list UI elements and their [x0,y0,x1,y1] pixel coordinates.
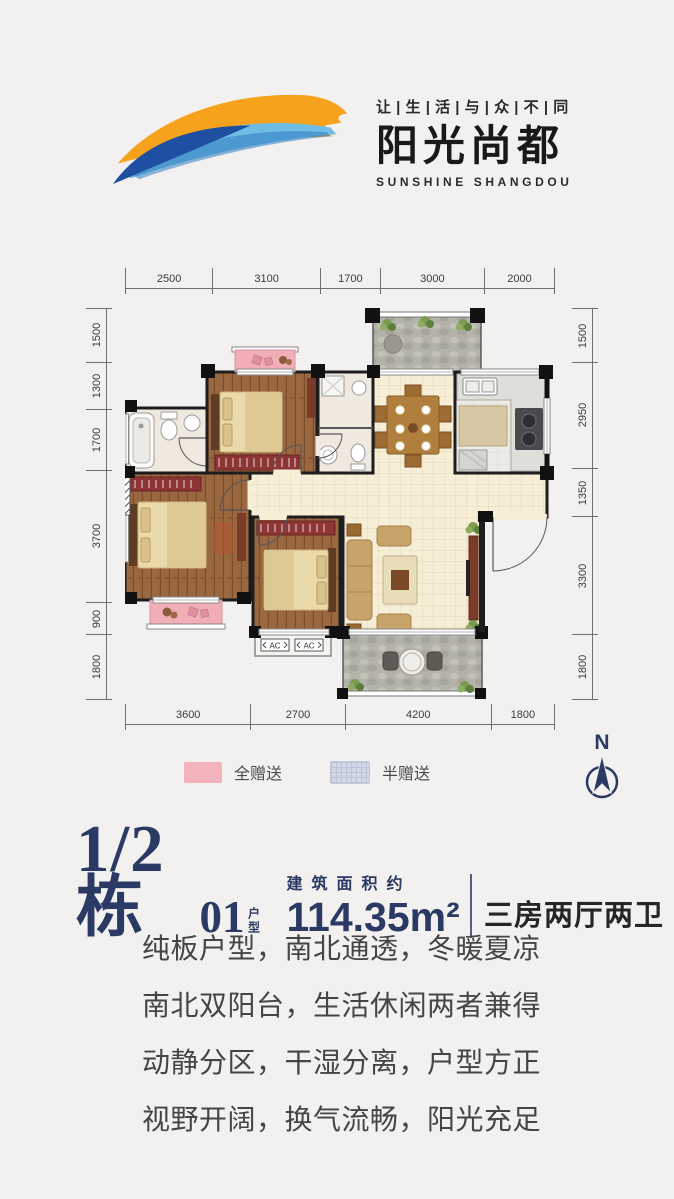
description-block: 纯板户型，南北通透，冬暖夏凉 南北双阳台，生活休闲两者兼得 动静分区，干湿分离，… [142,918,572,1146]
compass-icon [578,753,626,803]
legend-label: 全赠送 [234,760,282,784]
dimension-segment: 1500 [572,308,598,362]
full-gift-swatch-icon [184,762,222,783]
poster-page: 让 | 生 | 活 | 与 | 众 | 不 | 同 阳光尚都 SUNSHINE … [0,0,674,1199]
compass-north-label: N [578,732,626,753]
area-label: 建筑面积约 [287,870,460,894]
dimension-segment: 1300 [86,362,112,409]
compass: N [578,732,626,808]
dimension-segment: 2950 [572,362,598,467]
brand-text-block: 让 | 生 | 活 | 与 | 众 | 不 | 同 阳光尚都 SUNSHINE … [376,96,576,189]
ac-unit-label: AC [269,642,280,651]
dimension-strip-bottom: 3600270042001800 [125,704,555,730]
legend-item-half-gift: 半赠送 [330,760,430,784]
kitchen [455,372,547,473]
dimension-strip-right: 15002950135033001800 [572,308,598,700]
legend: 全赠送 半赠送 [0,760,614,784]
dimension-segment: 4200 [345,704,491,730]
brand-name-english: SUNSHINE SHANGDOU [376,175,576,189]
dimension-segment: 1700 [320,268,380,294]
legend-label: 半赠送 [382,760,430,784]
description-line: 动静分区，干湿分离，户型方正 [142,1032,572,1089]
floor-plan: AC AC [125,308,555,700]
brand-name: 阳光尚都 [376,125,576,167]
ac-unit-label: AC [303,642,314,651]
dimension-segment: 1800 [572,634,598,700]
master-bedroom [125,473,253,600]
entry-door [479,514,547,632]
north-balcony [365,308,485,372]
dimension-segment: 3000 [380,268,484,294]
dimension-segment: 3600 [125,704,250,730]
description-line: 纯板户型，南北通透，冬暖夏凉 [142,918,572,975]
dimension-segment: 3300 [572,516,598,634]
bedroom-3 [253,514,340,632]
wall-hatch [125,475,130,515]
bathroom-ensuite [316,372,374,473]
dimension-strip-top: 25003100170030002000 [125,268,555,294]
description-line: 南北双阳台，生活休闲两者兼得 [142,975,572,1032]
dimension-segment: 2500 [125,268,212,294]
bathroom-main [125,408,210,473]
half-gift-swatch-icon [330,761,370,784]
dimension-segment: 3100 [212,268,320,294]
dimension-segment: 900 [86,602,112,635]
dimension-strip-left: 15001300170037009001800 [86,308,112,700]
brand-logo-brush-icon [108,86,352,208]
dimension-segment: 3700 [86,470,112,602]
dimension-segment: 1800 [86,634,112,700]
dimension-segment: 1800 [491,704,555,730]
dimension-segment: 2000 [484,268,555,294]
south-balcony [337,626,488,699]
dimension-segment: 1500 [86,308,112,362]
dimension-segment: 1350 [572,468,598,517]
description-line: 视野开阔，换气流畅，阳光充足 [142,1089,572,1146]
legend-item-full-gift: 全赠送 [184,760,282,784]
gift-balcony-north [232,347,298,372]
gift-balcony-south [147,600,225,629]
dimension-segment: 2700 [250,704,344,730]
brand-tagline: 让 | 生 | 活 | 与 | 众 | 不 | 同 [376,96,576,117]
dimension-segment: 1700 [86,409,112,470]
bedroom-2 [207,372,317,476]
